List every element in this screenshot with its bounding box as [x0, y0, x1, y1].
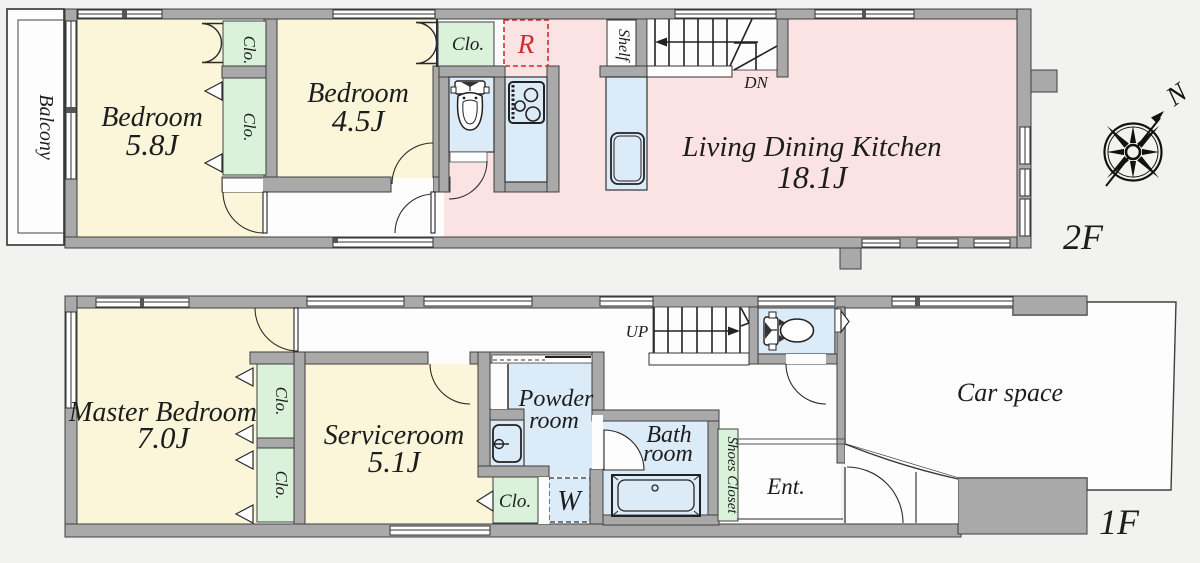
- svg-text:Clo.: Clo.: [452, 34, 484, 55]
- svg-text:DN: DN: [743, 73, 769, 92]
- svg-text:R: R: [517, 29, 535, 59]
- svg-text:1F: 1F: [1099, 502, 1140, 542]
- svg-text:W: W: [557, 486, 583, 517]
- svg-text:Clo.: Clo.: [272, 471, 291, 500]
- svg-text:room: room: [529, 408, 579, 434]
- svg-text:5.8J: 5.8J: [126, 127, 180, 162]
- svg-text:5.1J: 5.1J: [368, 444, 422, 479]
- svg-text:Clo.: Clo.: [240, 113, 259, 142]
- svg-text:Balcony: Balcony: [35, 94, 57, 160]
- svg-text:Ent.: Ent.: [766, 474, 805, 499]
- svg-text:UP: UP: [626, 322, 649, 341]
- svg-text:Clo.: Clo.: [499, 491, 531, 512]
- svg-text:room: room: [643, 441, 693, 467]
- svg-text:18.1J: 18.1J: [777, 159, 849, 195]
- svg-text:Clo.: Clo.: [272, 387, 291, 416]
- svg-text:Car space: Car space: [957, 378, 1063, 407]
- svg-text:Shelf: Shelf: [615, 29, 632, 64]
- svg-text:2F: 2F: [1063, 217, 1104, 257]
- svg-text:Shoes Closet: Shoes Closet: [724, 436, 740, 514]
- svg-text:Clo.: Clo.: [240, 36, 259, 65]
- svg-text:4.5J: 4.5J: [332, 103, 386, 138]
- svg-text:7.0J: 7.0J: [137, 420, 191, 455]
